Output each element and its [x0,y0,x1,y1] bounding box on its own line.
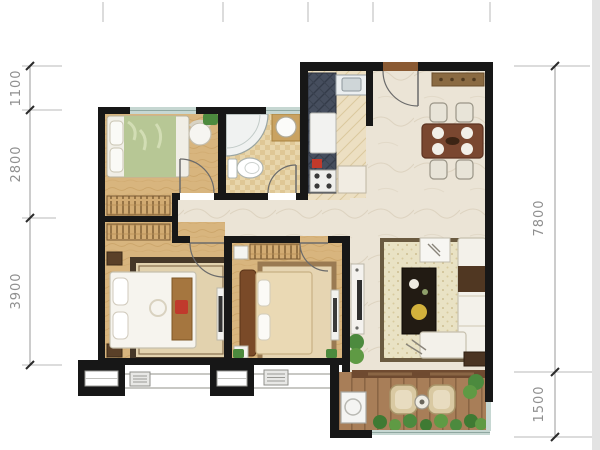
corner-chair [189,123,211,145]
dining-chair [456,160,473,179]
dimension-chain-left: 1100 2800 3900 [9,62,62,369]
entry-door [383,62,418,71]
bay-windows [78,360,330,396]
dining-chair [430,103,447,122]
dimension-chain-right: 7800 1500 [514,62,592,441]
red-accent [312,159,322,168]
sofa-dark-seat [458,266,486,292]
sofa-chaise [420,332,466,358]
pillow [113,312,128,339]
floor-plan-image: 1100 2800 3900 7800 1500 [0,0,600,450]
dim-label-2800: 2800 [9,145,24,182]
dining-chair [456,103,473,122]
plant [233,349,244,358]
pillow [258,314,270,340]
ac-outdoor-unit-icon [130,372,150,386]
plant [348,348,364,364]
wardrobe [107,196,170,215]
balcony-glass-rail-right [486,400,491,431]
tv [357,280,362,320]
plant [203,113,218,125]
ac-outdoor-unit-icon [264,370,288,385]
page-edge-strip [592,0,600,450]
pillow [110,148,123,172]
sink-basin [276,117,296,137]
nightstand [234,246,248,259]
dim-label-1500: 1500 [532,385,547,422]
dim-label-1100: 1100 [9,69,24,106]
dining-chair [430,160,447,179]
pillow [110,121,123,145]
side-table [420,238,450,262]
bookshelf [250,244,300,259]
top-extension-lines [103,2,490,22]
dim-label-3900: 3900 [9,272,24,309]
toilet-tank [228,159,237,178]
stove [310,170,336,192]
bed-headboard [240,270,256,356]
floor-plan-page: 1100 2800 3900 7800 1500 [0,0,600,450]
pillow [113,278,128,305]
kitchen-cabinet [338,166,366,193]
coffee-table [402,268,436,334]
plant [326,349,337,358]
plant [348,334,364,350]
bowl [411,304,427,320]
dim-label-7800: 7800 [532,199,547,236]
fridge [310,113,336,153]
red-cushion [175,300,188,314]
wardrobe [107,224,170,240]
nightstand [107,252,122,265]
pillow [258,280,270,306]
